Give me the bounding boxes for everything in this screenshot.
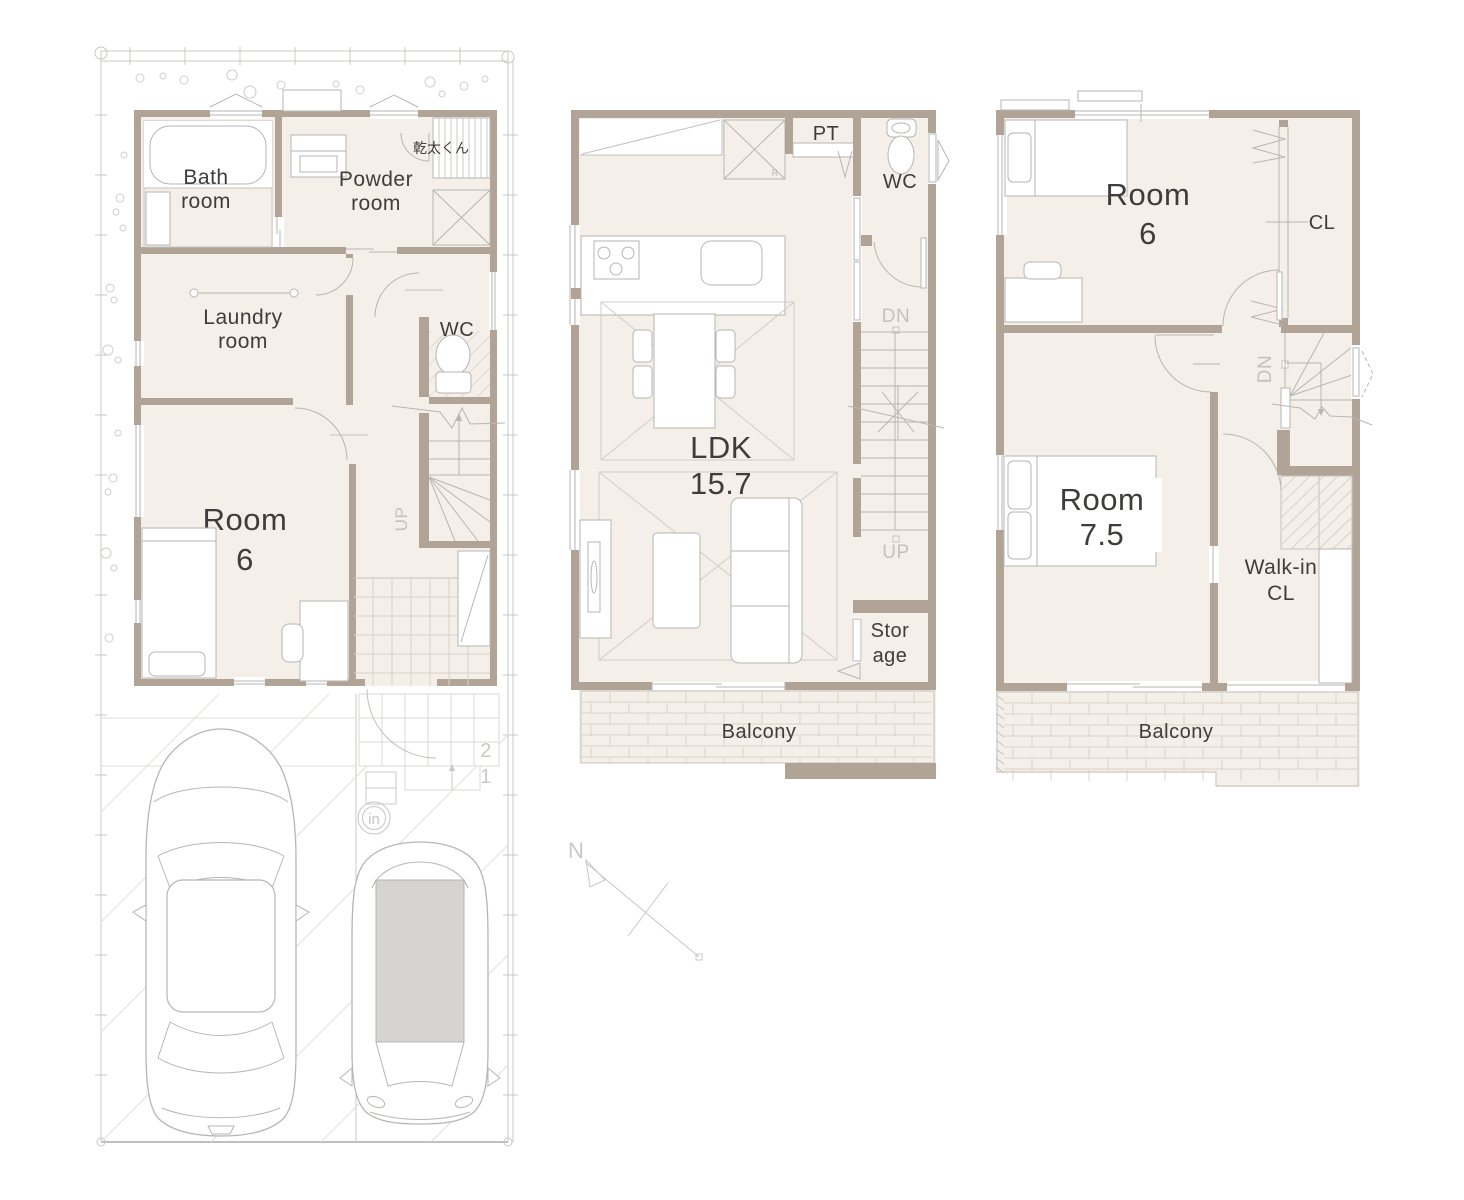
svg-text:Stor: Stor [871,620,910,642]
svg-text:room: room [218,330,268,353]
svg-text:CL: CL [1309,212,1336,234]
svg-text:UP: UP [882,542,909,563]
svg-text:6: 6 [1139,216,1157,251]
svg-text:R: R [772,168,779,178]
svg-text:Bath: Bath [183,166,228,189]
svg-text:N: N [568,838,584,863]
svg-text:DN: DN [882,306,910,327]
svg-text:15.7: 15.7 [690,466,752,501]
svg-text:DN: DN [1255,355,1276,383]
svg-text:in: in [368,811,380,828]
svg-text:Walk-in: Walk-in [1245,556,1318,579]
svg-text:Balcony: Balcony [722,721,797,743]
svg-text:Powder: Powder [339,168,413,191]
svg-text:7.5: 7.5 [1080,517,1125,552]
svg-text:1: 1 [480,766,492,788]
svg-text:Laundry: Laundry [203,306,282,329]
svg-text:room: room [351,192,401,215]
svg-text:2: 2 [480,740,492,762]
svg-text:WC: WC [883,171,917,193]
svg-text:age: age [873,645,908,667]
svg-text:UP: UP [392,507,411,532]
svg-text:Room: Room [1106,177,1191,212]
svg-text:PT: PT [813,123,840,145]
svg-text:room: room [181,190,231,213]
svg-text:Room: Room [1060,482,1145,517]
svg-text:6: 6 [236,542,254,577]
svg-text:CL: CL [1267,582,1295,605]
svg-text:LDK: LDK [690,430,752,465]
svg-text:Balcony: Balcony [1139,721,1214,743]
svg-text:乾太くん: 乾太くん [413,140,469,156]
